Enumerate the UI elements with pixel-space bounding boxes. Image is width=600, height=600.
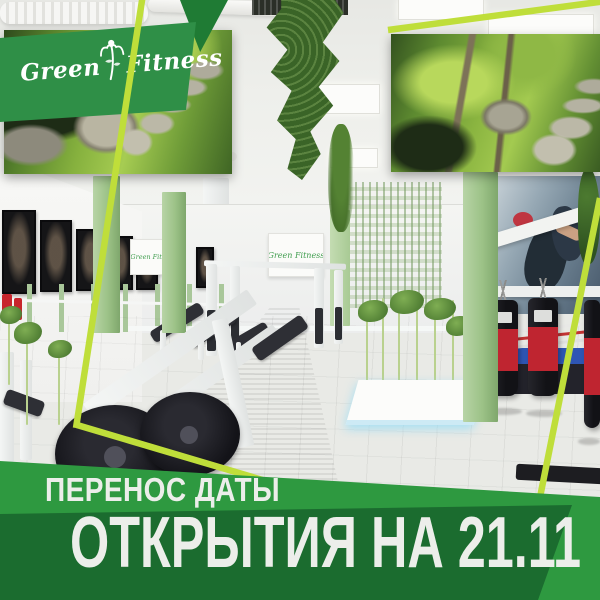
headline-line2: ОТКРЫТИЯ НА 21.11 — [70, 502, 581, 584]
gym-opening-poster: Green Fitness Green Fitness — [0, 0, 600, 600]
